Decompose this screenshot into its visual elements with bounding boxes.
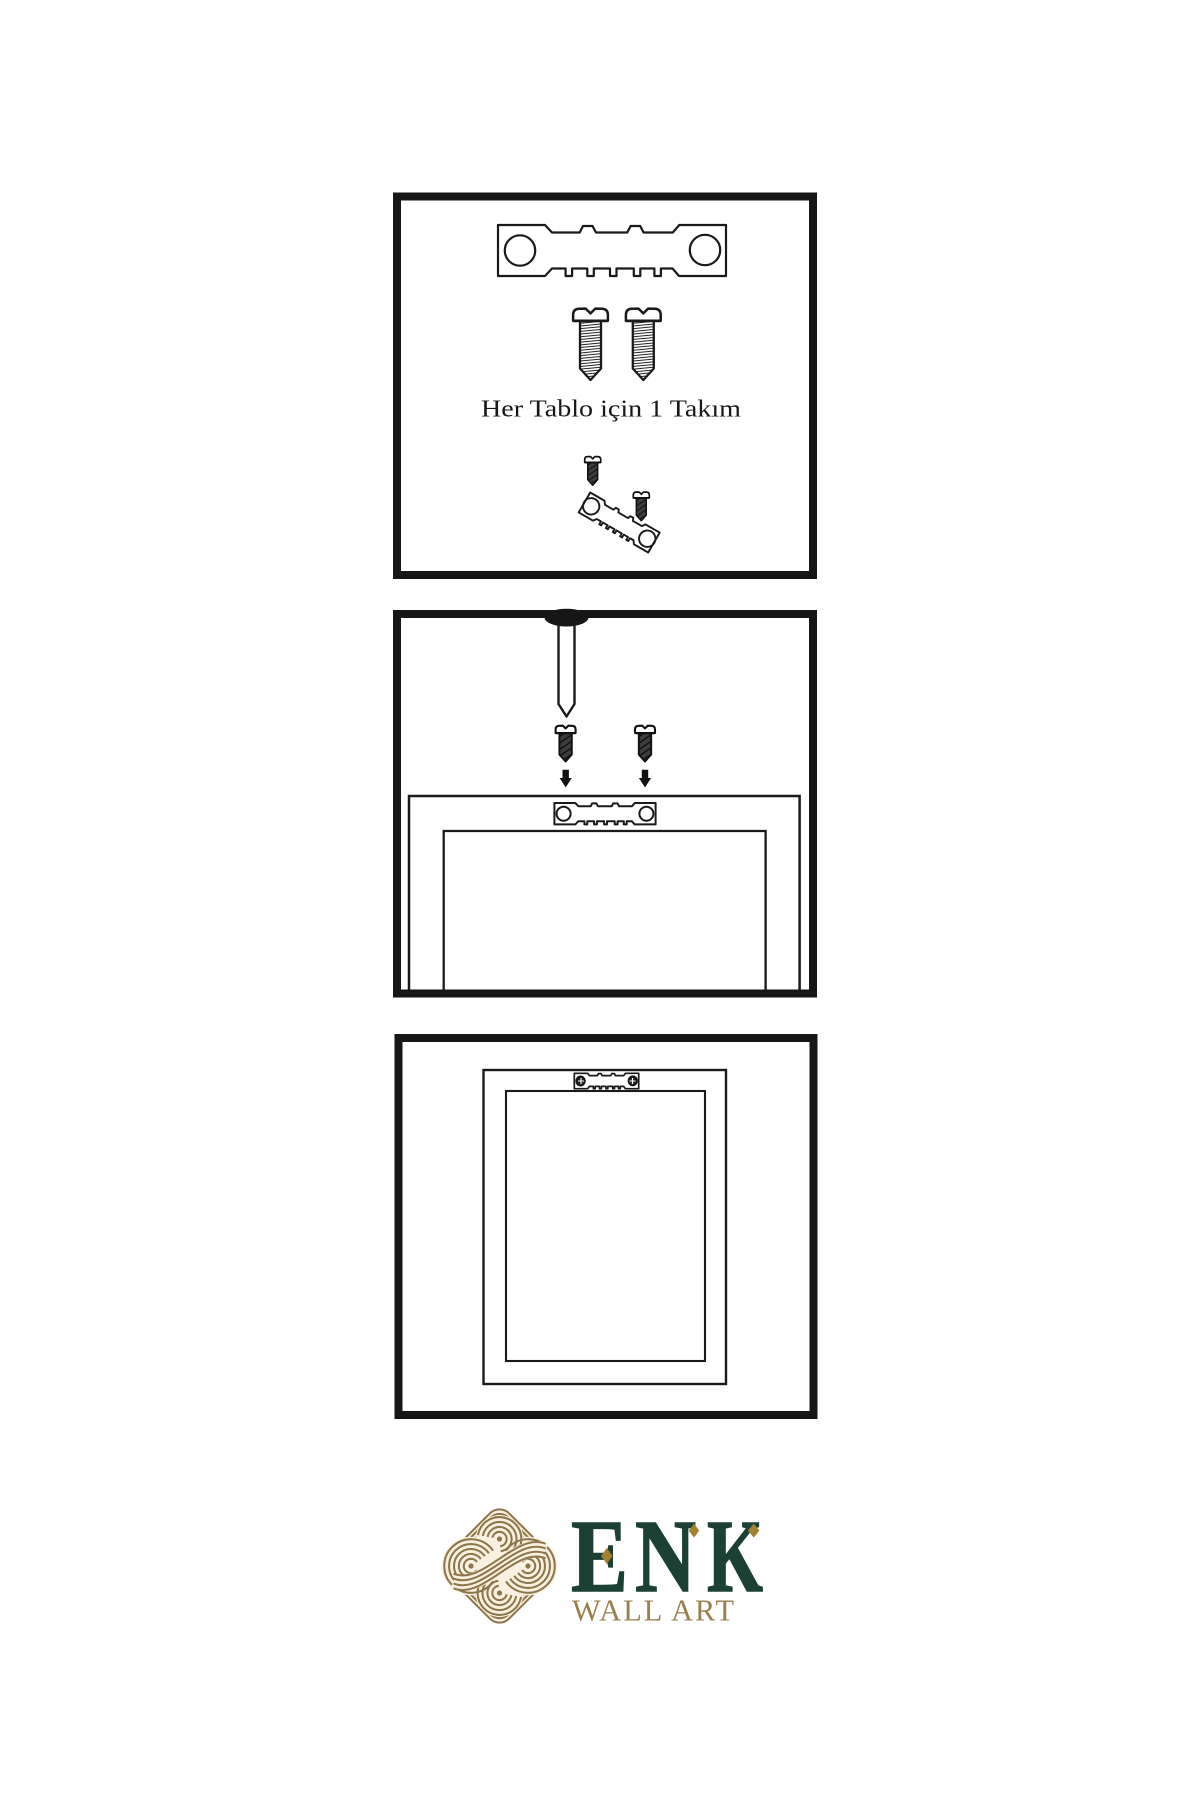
svg-text:WALL ART: WALL ART (572, 1594, 736, 1628)
svg-text:Her Tablo için 1 Takım: Her Tablo için 1 Takım (481, 397, 741, 423)
